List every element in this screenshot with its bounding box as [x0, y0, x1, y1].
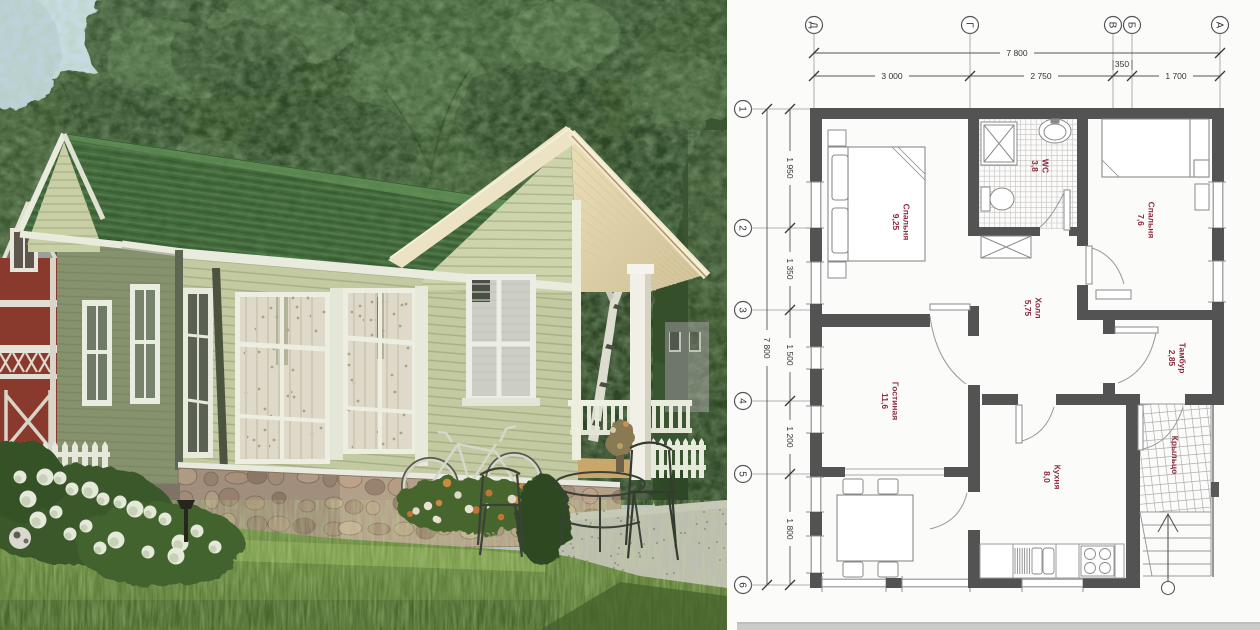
- svg-text:2 750: 2 750: [1030, 71, 1052, 81]
- svg-text:1 700: 1 700: [1165, 71, 1187, 81]
- svg-text:7 800: 7 800: [762, 337, 772, 359]
- svg-text:1 950: 1 950: [785, 157, 795, 179]
- svg-text:11,6: 11,6: [880, 393, 890, 409]
- svg-text:Кухня: Кухня: [1052, 465, 1062, 490]
- svg-text:Спальня: Спальня: [1146, 202, 1156, 239]
- svg-text:А: А: [1214, 22, 1225, 29]
- svg-text:3,8: 3,8: [1030, 160, 1040, 172]
- svg-text:Холл: Холл: [1033, 297, 1043, 318]
- svg-text:5,75: 5,75: [1023, 300, 1033, 317]
- svg-text:8,0: 8,0: [1042, 471, 1052, 483]
- svg-text:1 350: 1 350: [785, 258, 795, 280]
- svg-text:В: В: [1107, 22, 1118, 29]
- svg-text:6: 6: [737, 582, 748, 588]
- svg-text:Б: Б: [1126, 22, 1137, 29]
- svg-text:7 800: 7 800: [1006, 48, 1028, 58]
- svg-text:2,85: 2,85: [1167, 350, 1177, 367]
- svg-text:Г: Г: [964, 22, 975, 28]
- svg-text:Спальня: Спальня: [901, 204, 911, 241]
- svg-text:1: 1: [737, 106, 748, 112]
- svg-text:1 800: 1 800: [785, 518, 795, 540]
- svg-text:Крыльцо: Крыльцо: [1170, 436, 1180, 475]
- svg-text:3: 3: [737, 307, 748, 313]
- svg-text:5: 5: [737, 471, 748, 477]
- svg-text:4: 4: [737, 398, 748, 404]
- svg-text:WC: WC: [1040, 159, 1050, 173]
- svg-text:2: 2: [737, 225, 748, 231]
- svg-text:3 000: 3 000: [881, 71, 903, 81]
- svg-text:7,6: 7,6: [1136, 214, 1146, 226]
- svg-text:1 200: 1 200: [785, 426, 795, 448]
- svg-text:350: 350: [1115, 59, 1129, 69]
- svg-text:1 500: 1 500: [785, 344, 795, 366]
- svg-text:Гостиная: Гостиная: [890, 382, 900, 420]
- svg-text:Д: Д: [808, 22, 819, 29]
- svg-text:Тамбур: Тамбур: [1177, 343, 1187, 374]
- svg-text:9,25: 9,25: [891, 214, 901, 231]
